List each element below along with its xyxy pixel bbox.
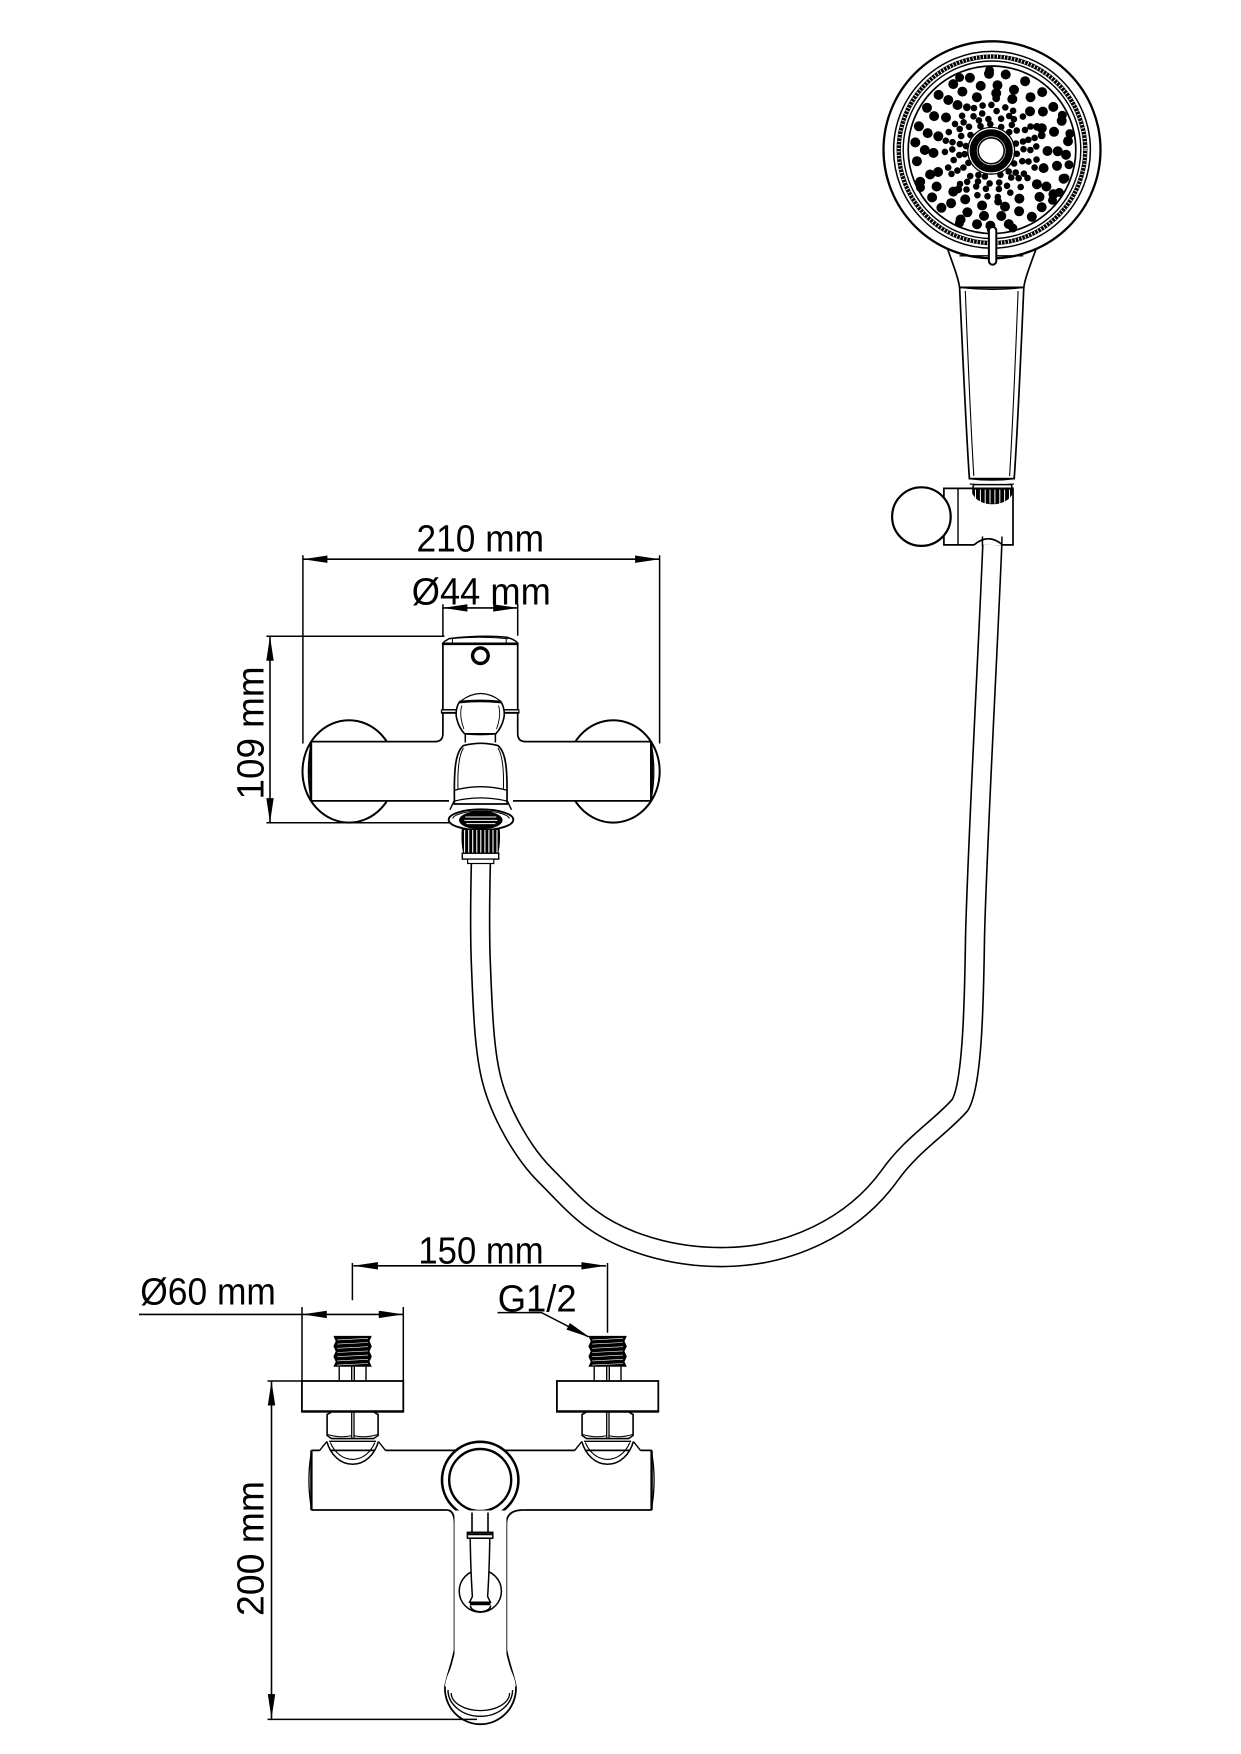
svg-text:G1/2: G1/2 xyxy=(498,1278,577,1320)
svg-text:200 mm: 200 mm xyxy=(231,1481,273,1616)
svg-text:Ø60 mm: Ø60 mm xyxy=(140,1272,276,1314)
svg-text:210 mm: 210 mm xyxy=(417,519,545,561)
svg-text:109 mm: 109 mm xyxy=(231,667,273,800)
